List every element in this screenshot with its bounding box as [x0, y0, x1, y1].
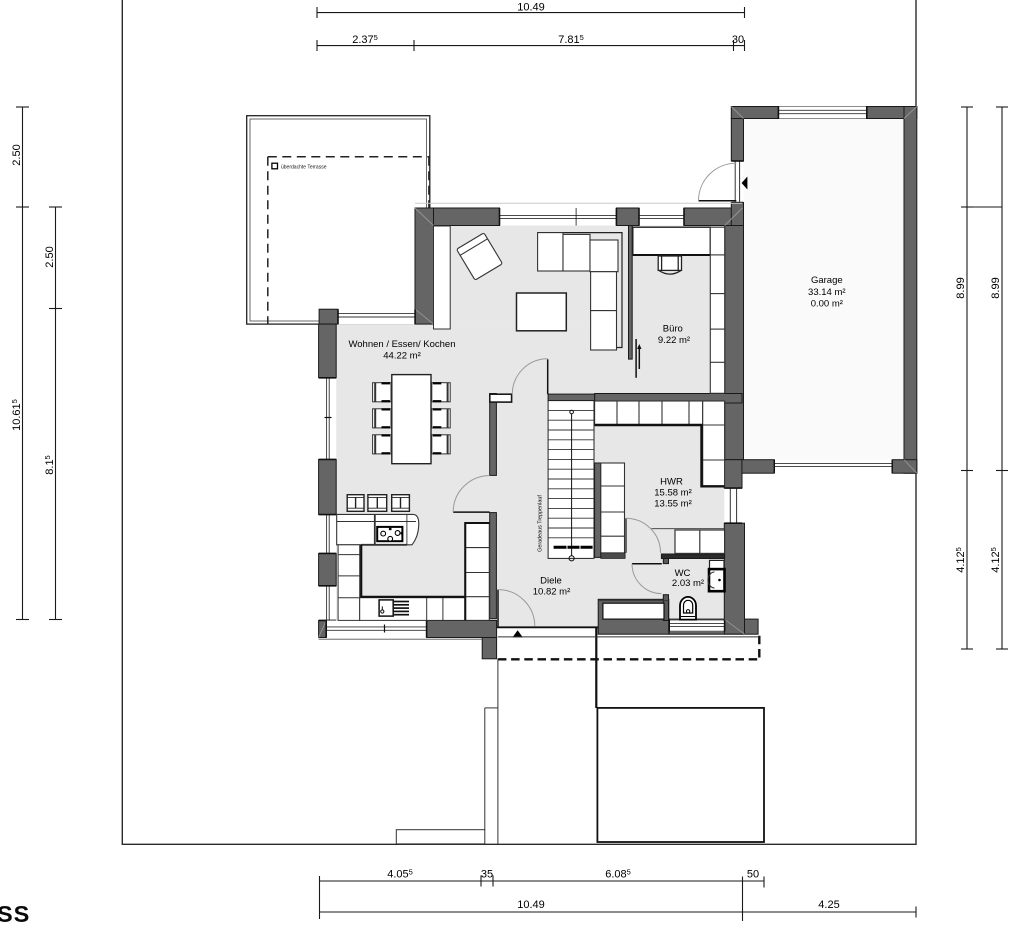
svg-text:44.22 m²: 44.22 m² [383, 351, 421, 362]
svg-text:4.25: 4.25 [818, 899, 839, 911]
svg-text:2.03 m²: 2.03 m² [672, 578, 704, 589]
svg-text:überdachte Terrasse: überdachte Terrasse [281, 165, 327, 171]
svg-text:33.14 m²: 33.14 m² [808, 287, 846, 298]
svg-text:9.22 m²: 9.22 m² [658, 335, 690, 346]
svg-text:10.615: 10.615 [10, 399, 23, 431]
svg-text:10.49: 10.49 [517, 2, 545, 14]
svg-text:SS: SS [0, 901, 30, 926]
svg-text:HWR: HWR [660, 477, 683, 488]
svg-text:2.50: 2.50 [44, 246, 56, 267]
svg-text:10.82 m²: 10.82 m² [533, 587, 571, 598]
svg-text:Wohnen / Essen/ Kochen: Wohnen / Essen/ Kochen [348, 339, 455, 350]
svg-text:15.58 m²: 15.58 m² [654, 488, 692, 499]
svg-text:Geradeaus Treppenlauf: Geradeaus Treppenlauf [538, 495, 544, 552]
svg-text:10.49: 10.49 [517, 899, 545, 911]
svg-text:30: 30 [732, 34, 744, 46]
svg-text:13.55 m²: 13.55 m² [654, 499, 692, 510]
svg-text:0.00 m²: 0.00 m² [811, 299, 843, 310]
svg-text:2.50: 2.50 [11, 144, 23, 165]
svg-text:Garage: Garage [811, 275, 843, 286]
svg-text:Diele: Diele [540, 576, 562, 587]
svg-text:8.99: 8.99 [955, 277, 967, 298]
svg-text:35: 35 [481, 869, 493, 881]
svg-text:Büro: Büro [663, 324, 683, 335]
svg-text:8.99: 8.99 [990, 277, 1002, 298]
svg-text:50: 50 [747, 869, 759, 881]
